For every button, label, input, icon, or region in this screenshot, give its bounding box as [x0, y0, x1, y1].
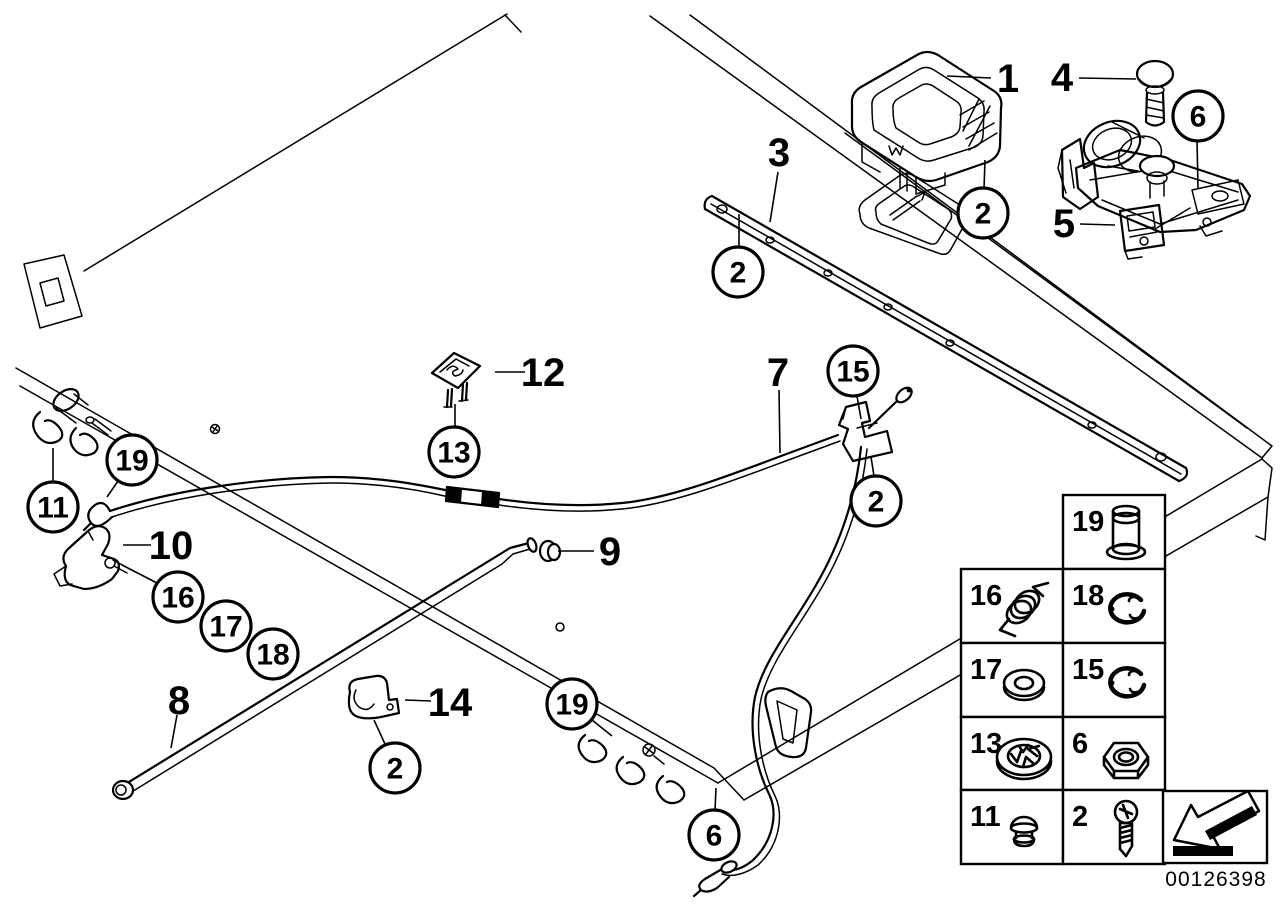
legend-cell-17[interactable]: 17 — [961, 643, 1063, 717]
callout-number: 18 — [256, 639, 289, 672]
callout-number: 14 — [428, 681, 473, 725]
callout-circle-6[interactable]: 6 — [689, 810, 739, 860]
callout-number: 3 — [768, 131, 790, 175]
callout-number: 19 — [555, 689, 588, 722]
legend-cell-15[interactable]: 15 — [1063, 643, 1165, 717]
legend-cell-number: 18 — [1072, 580, 1104, 612]
leader-line — [715, 788, 716, 811]
release-lever — [54, 526, 127, 589]
callout-number: 16 — [161, 582, 194, 615]
floor-cap — [432, 353, 480, 407]
legend-cell-18[interactable]: 18 — [1063, 569, 1165, 643]
callout-number: 7 — [767, 351, 789, 395]
sill-rail — [705, 196, 1187, 481]
callout-number: 6 — [1190, 101, 1207, 134]
callout-circle-2[interactable]: 2 — [958, 188, 1008, 238]
legend-cell-number: 2 — [1072, 801, 1088, 833]
diagram-number: 00126398 — [1165, 868, 1266, 891]
legend-cell-13[interactable]: 13 — [961, 717, 1063, 790]
legend-cell-2[interactable]: 2 — [1063, 790, 1165, 864]
callout-label-9[interactable]: 9 — [599, 530, 621, 574]
leader-line — [871, 457, 874, 476]
callout-number: 2 — [975, 198, 992, 231]
legend-cell-number: 11 — [970, 801, 1001, 833]
handle-gasket — [859, 174, 968, 255]
callout-number: 6 — [706, 820, 723, 853]
callout-number: 12 — [521, 351, 566, 395]
legend-cell-11[interactable]: 11 — [961, 790, 1063, 864]
legend-cell-number: 17 — [970, 654, 1002, 686]
callout-circle-2[interactable]: 2 — [851, 476, 901, 526]
callout-circle-16[interactable]: 16 — [153, 572, 203, 622]
callout-circle-19[interactable]: 19 — [107, 435, 157, 485]
callout-circle-2[interactable]: 2 — [713, 247, 763, 297]
callout-number: 2 — [868, 486, 885, 519]
callout-number: 2 — [730, 257, 747, 290]
callout-circle-6[interactable]: 6 — [1173, 91, 1223, 141]
callout-number: 13 — [437, 437, 470, 470]
callout-circle-11[interactable]: 11 — [28, 482, 78, 532]
leader-line — [1080, 224, 1115, 225]
legend-cell-6[interactable]: 6 — [1063, 717, 1165, 790]
callout-number: 10 — [149, 524, 194, 568]
callout-circle-17[interactable]: 17 — [201, 601, 251, 651]
leader-line — [107, 481, 118, 497]
callout-label-7[interactable]: 7 — [767, 351, 789, 395]
callout-number: 17 — [209, 611, 242, 644]
leader-line — [770, 172, 778, 222]
callout-number: 4 — [1051, 56, 1074, 100]
callout-number: 8 — [168, 679, 190, 723]
leader-line — [779, 390, 780, 453]
parts-diagram-canvas: 13457891012142222661113151617181919 1916… — [0, 0, 1288, 910]
direction-arrow-box — [1163, 791, 1267, 863]
callout-number: 9 — [599, 530, 621, 574]
callout-label-3[interactable]: 3 — [768, 131, 790, 175]
callout-label-8[interactable]: 8 — [168, 679, 190, 723]
cable-clamp — [349, 676, 399, 718]
legend-cell-19[interactable]: 19 — [1063, 495, 1165, 569]
callout-circle-2[interactable]: 2 — [370, 743, 420, 793]
legend-cell-number: 15 — [1072, 654, 1104, 686]
legend-cell-16[interactable]: 16 — [961, 569, 1063, 643]
callout-circle-19[interactable]: 19 — [547, 679, 597, 729]
callout-circle-13[interactable]: 13 — [429, 427, 479, 477]
callout-circle-18[interactable]: 18 — [248, 629, 298, 679]
callout-number: 1 — [997, 57, 1019, 101]
callout-label-14[interactable]: 14 — [428, 681, 473, 725]
callout-number: 5 — [1053, 202, 1075, 246]
handle-housing — [852, 52, 1001, 194]
callout-label-5[interactable]: 5 — [1053, 202, 1075, 246]
callout-circle-15[interactable]: 15 — [828, 346, 878, 396]
cable-clips-left — [33, 385, 111, 456]
striker-plate — [1120, 205, 1164, 259]
callout-number: 19 — [115, 445, 148, 478]
legend-cell-number: 6 — [1072, 728, 1088, 760]
legend-cell-number: 19 — [1072, 506, 1104, 538]
leader-line — [1079, 78, 1136, 79]
callout-number: 15 — [836, 356, 869, 389]
leader-line — [984, 160, 985, 189]
legend-table: 1916181715136112 — [961, 495, 1165, 864]
leader-line — [592, 720, 612, 736]
callout-number: 11 — [37, 492, 69, 525]
callout-label-10[interactable]: 10 — [149, 524, 194, 568]
stop-buffer-knob — [1137, 61, 1173, 126]
parts-diagram-page: 13457891012142222661113151617181919 1916… — [0, 0, 1288, 910]
leader-line — [374, 720, 385, 744]
callout-label-1[interactable]: 1 — [997, 57, 1019, 101]
callout-label-4[interactable]: 4 — [1051, 56, 1074, 100]
leader-line — [947, 76, 991, 78]
cable-clips-bottom — [579, 735, 685, 803]
callout-label-12[interactable]: 12 — [521, 351, 566, 395]
legend-cell-number: 16 — [970, 580, 1002, 612]
leader-line — [1197, 140, 1198, 188]
callout-number: 2 — [387, 753, 404, 786]
